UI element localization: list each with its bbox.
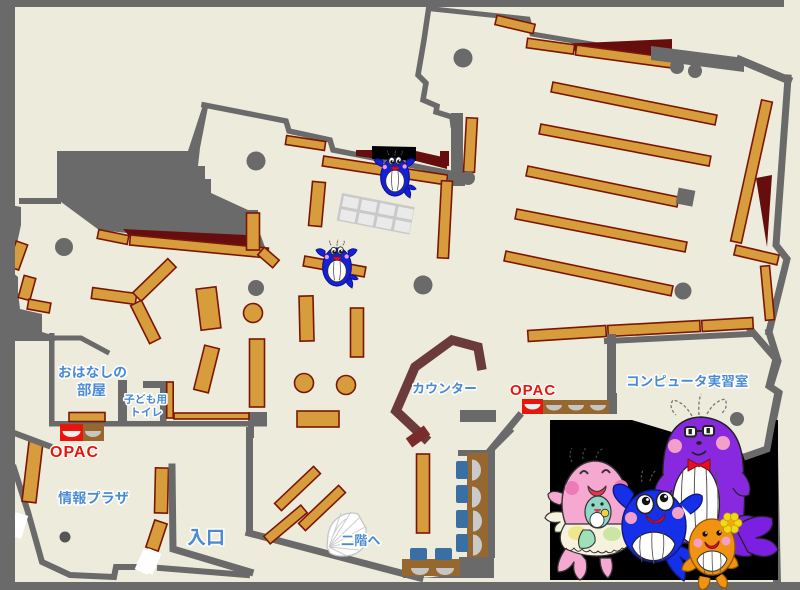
svg-text:OPAC: OPAC [510,382,556,399]
svg-text:OPAC: OPAC [50,444,99,461]
